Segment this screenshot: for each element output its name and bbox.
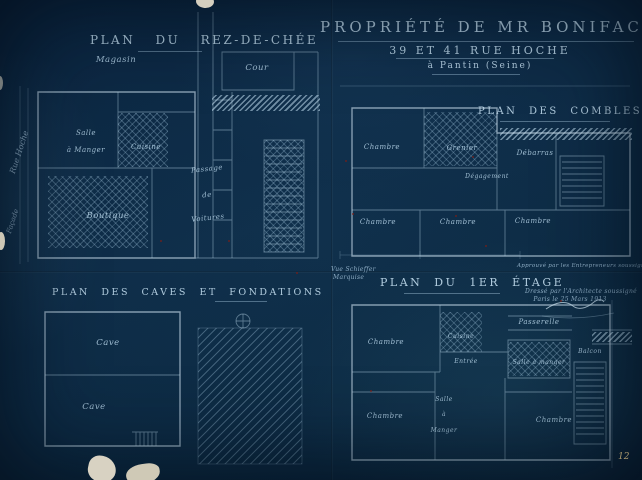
room-label-combles-chambre-nw: Chambre <box>364 143 400 151</box>
ink-speck <box>228 240 230 242</box>
room-label-cave-bas: Cave <box>82 402 105 412</box>
room-label-combles-chambre-se: Chambre <box>515 217 551 225</box>
sheet-title-line1: Propriété de Mr Bonifacy <box>320 18 640 36</box>
room-label-entree: Entrée <box>454 358 478 365</box>
ink-speck <box>352 213 354 215</box>
ink-speck <box>160 240 162 242</box>
sheet-title-line3: à Pantin (Seine) <box>390 61 570 71</box>
annotation-note-line1: Vue Schieffer <box>331 266 376 273</box>
room-label-etage1-chambre-nw: Chambre <box>368 338 404 346</box>
room-label-cuisine: Cuisine <box>131 143 161 151</box>
room-label-combles-chambre-sw: Chambre <box>360 218 396 226</box>
ink-speck <box>455 215 457 217</box>
room-label-salle: Salle <box>76 129 96 137</box>
room-label-cour: Cour <box>245 63 268 73</box>
room-label-magasin: Magasin <box>96 55 136 65</box>
ink-speck <box>370 390 372 392</box>
annotation-note-line2: Marquise <box>333 274 364 281</box>
plan-title-etage1-underline <box>404 293 500 294</box>
room-label-etage1-chambre-se: Chambre <box>536 416 572 424</box>
room-label-combles-chambre-s: Chambre <box>440 218 476 226</box>
plan-title-etage1: Plan du 1er Étage <box>380 276 522 289</box>
title-underline-2 <box>396 58 554 59</box>
annotation-drafted-line1: Dressé par l'Architecte soussigné <box>521 288 641 295</box>
room-label-de: de <box>202 191 212 200</box>
plan-title-rdc: Plan du Rez-de-Chée <box>90 33 310 47</box>
room-label-passerelle: Passerelle <box>518 318 559 326</box>
room-label-a-manger: à Manger <box>67 146 105 154</box>
title-underline-3 <box>432 74 520 75</box>
room-label-etage1-chambre-sw: Chambre <box>367 412 403 420</box>
room-label-etage1-manger: Manger <box>431 427 458 434</box>
plan-title-caves: Plan des Caves et Fondations <box>52 287 270 298</box>
room-label-balcon: Balcon <box>578 348 602 355</box>
room-label-salle-hachuree: Salle à manger <box>513 359 566 366</box>
ink-speck <box>485 245 487 247</box>
blueprint-sheet: Propriété de Mr Bonifacy 39 et 41 Rue Ho… <box>0 0 642 480</box>
plan-title-rdc-underline <box>138 51 202 52</box>
page-number: 12 <box>618 452 629 462</box>
room-label-etage1-salle: Salle <box>435 396 453 403</box>
title-underline-1 <box>338 41 634 42</box>
plan-title-caves-underline <box>215 301 267 302</box>
annotation-approved: Approuvé par les Entrepreneurs soussigné… <box>517 263 639 269</box>
ink-speck <box>296 272 298 274</box>
room-label-etage1-cuisine: Cuisine <box>448 333 474 340</box>
interior-walls <box>38 12 632 460</box>
ink-speck <box>560 300 562 302</box>
ink-speck <box>345 160 347 162</box>
room-label-debarras: Débarras <box>517 149 554 157</box>
annotation-drafted-line2: Paris le 25 Mars 1913 <box>530 296 610 303</box>
room-label-degagement: Dégagement <box>465 173 509 180</box>
room-label-boutique: Boutique <box>87 211 130 221</box>
ink-speck <box>472 156 474 158</box>
sheet-title-line2: 39 et 41 Rue Hoche <box>345 44 615 57</box>
plan-title-combles: Plan des Combles <box>478 106 638 117</box>
room-label-grenier: Grenier <box>447 144 478 152</box>
room-label-etage1-a: à <box>442 411 446 418</box>
plan-title-combles-underline <box>500 121 610 122</box>
room-label-cave-haut: Cave <box>96 338 119 348</box>
